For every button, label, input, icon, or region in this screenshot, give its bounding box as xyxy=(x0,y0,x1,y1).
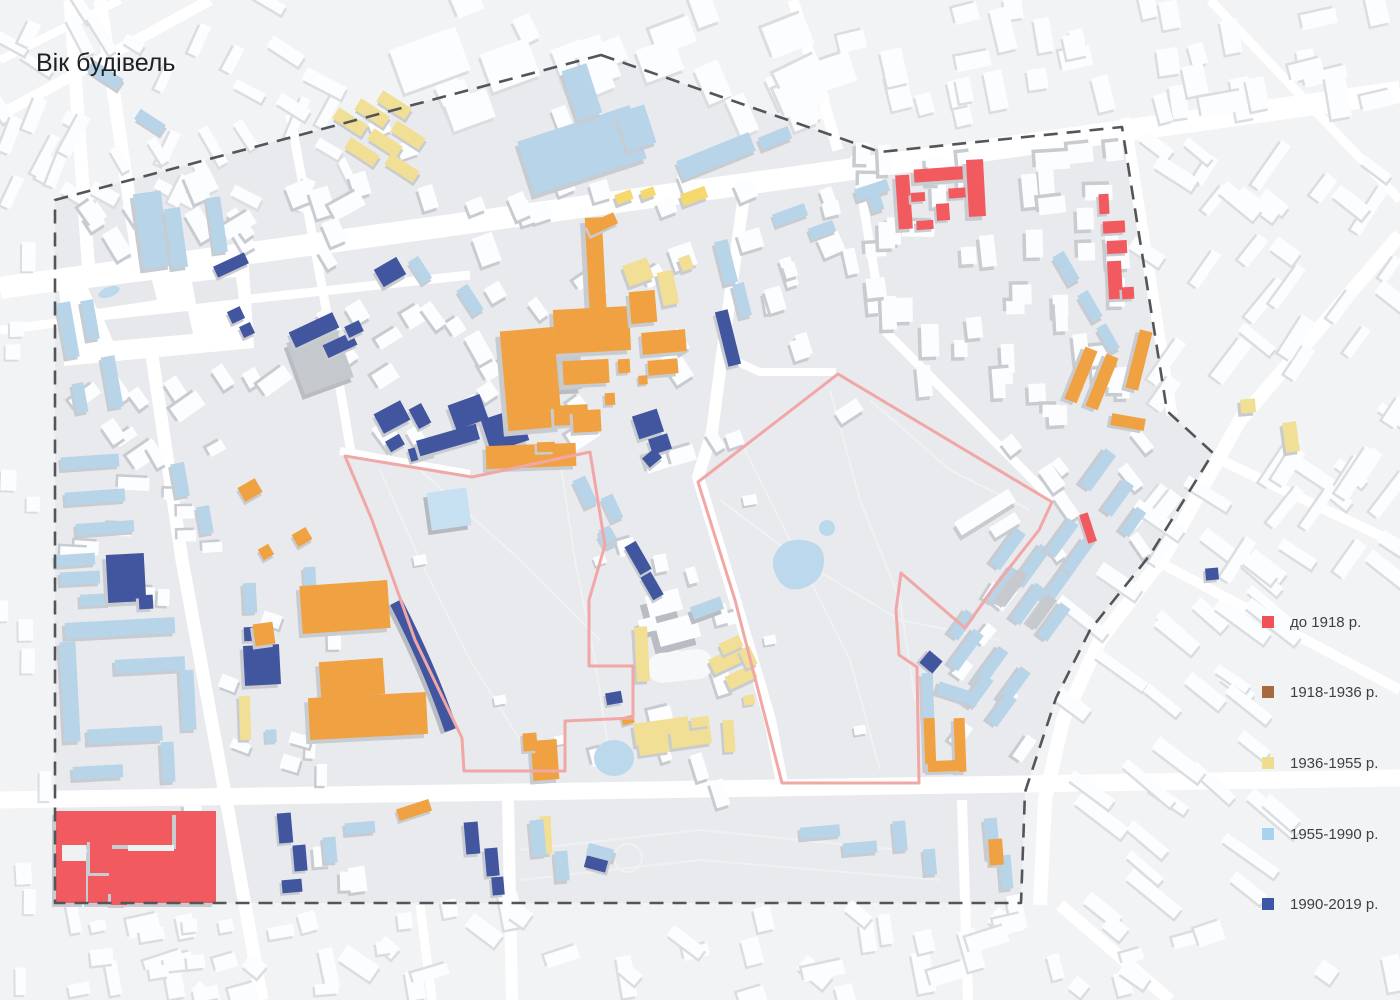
svg-text:Вік будівель: Вік будівель xyxy=(36,49,175,77)
svg-text:1918-1936 р.: 1918-1936 р. xyxy=(1290,684,1378,701)
svg-text:1936-1955 р.: 1936-1955 р. xyxy=(1290,755,1378,772)
svg-text:до 1918 р.: до 1918 р. xyxy=(1290,614,1361,631)
svg-text:1955-1990 р.: 1955-1990 р. xyxy=(1290,826,1378,843)
svg-text:1990-2019 р.: 1990-2019 р. xyxy=(1290,896,1378,913)
